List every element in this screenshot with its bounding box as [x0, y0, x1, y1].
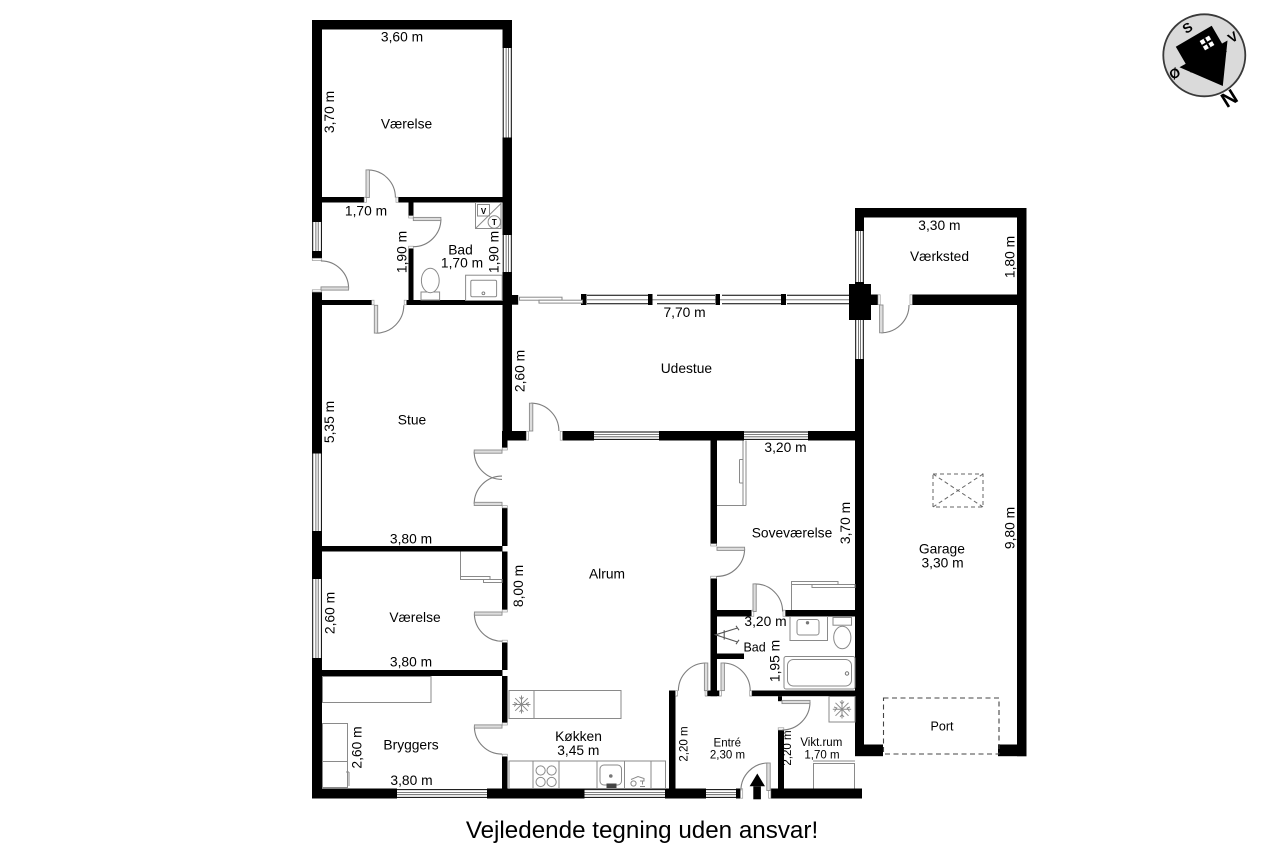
svg-text:1,95 m: 1,95 m: [768, 640, 783, 682]
svg-text:Vikt.rum: Vikt.rum: [800, 737, 842, 749]
svg-text:Køkken: Køkken: [555, 729, 602, 744]
svg-text:1,80 m: 1,80 m: [1003, 236, 1018, 278]
svg-text:9,80 m: 9,80 m: [1003, 507, 1018, 549]
svg-text:3,60 m: 3,60 m: [381, 30, 423, 45]
svg-text:Garage: Garage: [919, 542, 965, 557]
svg-text:3,30 m: 3,30 m: [918, 218, 960, 233]
svg-text:2,30 m: 2,30 m: [710, 750, 745, 762]
svg-text:1,90 m: 1,90 m: [487, 231, 502, 273]
svg-text:1,70 m: 1,70 m: [345, 204, 387, 219]
svg-text:Værksted: Værksted: [910, 249, 969, 264]
svg-text:Bryggers: Bryggers: [383, 738, 438, 753]
svg-text:3,70 m: 3,70 m: [322, 91, 337, 133]
svg-text:Bad: Bad: [743, 641, 765, 655]
svg-text:2,60 m: 2,60 m: [513, 350, 528, 392]
svg-text:3,80 m: 3,80 m: [390, 532, 432, 547]
svg-text:1,70 m: 1,70 m: [804, 750, 839, 762]
svg-text:1,90 m: 1,90 m: [395, 231, 410, 273]
svg-text:Alrum: Alrum: [589, 567, 625, 582]
svg-text:3,45 m: 3,45 m: [557, 743, 599, 758]
svg-text:2,60 m: 2,60 m: [323, 592, 338, 634]
svg-text:5,35 m: 5,35 m: [322, 401, 337, 443]
svg-text:Værelse: Værelse: [389, 610, 441, 625]
svg-text:Værelse: Værelse: [381, 117, 433, 132]
svg-text:Vejledende tegning uden ansvar: Vejledende tegning uden ansvar!: [466, 817, 818, 844]
svg-text:2,20 m: 2,20 m: [679, 726, 691, 761]
svg-text:2,60 m: 2,60 m: [350, 726, 365, 768]
svg-text:Port: Port: [931, 720, 954, 734]
svg-text:3,80 m: 3,80 m: [390, 655, 432, 670]
svg-text:3,30 m: 3,30 m: [922, 556, 964, 571]
svg-text:3,20 m: 3,20 m: [744, 614, 786, 629]
svg-text:3,70 m: 3,70 m: [838, 502, 853, 544]
svg-text:Udestue: Udestue: [661, 361, 713, 376]
svg-text:1,70 m: 1,70 m: [441, 256, 483, 271]
svg-text:Soveværelse: Soveværelse: [752, 526, 833, 541]
svg-text:Entré: Entré: [714, 738, 742, 750]
svg-text:8,00 m: 8,00 m: [511, 565, 526, 607]
svg-text:T: T: [492, 218, 497, 227]
svg-text:3,80 m: 3,80 m: [390, 773, 432, 788]
svg-text:V: V: [481, 207, 487, 216]
svg-text:3,20 m: 3,20 m: [764, 440, 806, 455]
svg-text:Stue: Stue: [398, 413, 427, 428]
svg-text:2,20 m: 2,20 m: [782, 730, 794, 765]
svg-text:7,70 m: 7,70 m: [664, 305, 706, 320]
